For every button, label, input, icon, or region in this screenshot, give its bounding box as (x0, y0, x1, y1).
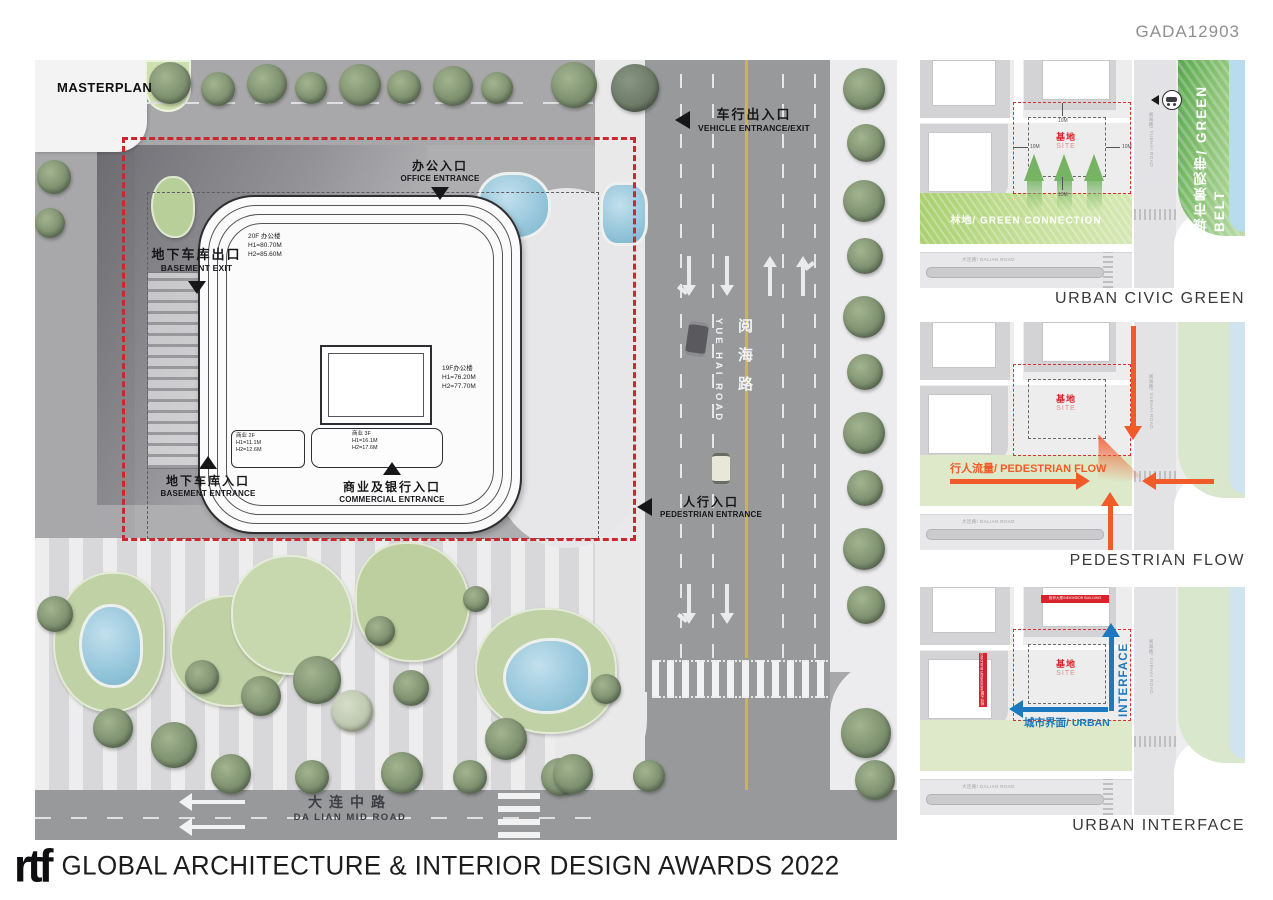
tree-icon (843, 180, 885, 222)
dalian-road: 大连路/ DALIAN ROAD (920, 252, 1132, 288)
crosswalk (1134, 209, 1176, 220)
tree-icon (843, 68, 885, 110)
tree-icon (37, 160, 71, 194)
vehicle-access-badge (1146, 90, 1182, 110)
site-en: SITE (1038, 670, 1094, 679)
interface-arrow-horizontal (1022, 707, 1108, 712)
road-median (926, 794, 1104, 805)
tree-icon (295, 760, 329, 794)
yuehai-road-label: 阅海路/ YUEHAI ROAD (1148, 639, 1154, 694)
site-zh: 基地 (1038, 659, 1094, 670)
building (932, 60, 996, 106)
site-en: SITE (1038, 405, 1094, 414)
diagram-urban-interface: 大连路/ DALIAN ROAD 阅海路/ YUEHAI ROAD 基地 SIT… (920, 587, 1245, 815)
arrow-down-icon (431, 187, 449, 200)
tree-icon (463, 586, 489, 612)
dalian-road-label: 大连路/ DALIAN ROAD (962, 784, 1015, 790)
building (1042, 587, 1110, 627)
waterfront (1229, 587, 1245, 759)
site-label: 基地 SITE (1038, 132, 1094, 152)
flow-arrow-left (950, 479, 1076, 484)
dalian-road-label: 大连路/ DALIAN ROAD (962, 519, 1015, 525)
tree-icon (611, 64, 659, 112)
tree-icon (633, 760, 665, 792)
site-en: SITE (1038, 143, 1094, 152)
caption-pedestrian-flow: PEDESTRIAN FLOW (920, 552, 1245, 570)
building (1042, 322, 1110, 362)
tree-icon (485, 718, 527, 760)
tree-icon (295, 72, 327, 104)
tree-icon (331, 690, 373, 732)
yuehai-road-zh: 阅海路 (734, 318, 755, 528)
lane-arrow-down-icon (725, 256, 729, 292)
tree-icon (847, 586, 885, 624)
site-zh: 基地 (1038, 394, 1094, 405)
tree-icon (365, 616, 395, 646)
tree-icon (591, 674, 621, 704)
tree-icon (293, 656, 341, 704)
arrow-up-icon (383, 462, 401, 475)
project-code: GADA12903 (1136, 22, 1240, 42)
tree-icon (339, 64, 381, 106)
pedestrian-flow-label: 行人流量/ PEDESTRIAN FLOW (950, 460, 1106, 476)
tree-icon (481, 72, 513, 104)
tree-icon (185, 660, 219, 694)
basement-exit-en: BASEMENT EXIT (161, 264, 233, 273)
dalian-road-label: 大连中路 DA LIAN MID ROAD (230, 792, 470, 823)
dimension-value: 10M (1122, 144, 1132, 150)
dalian-road-en: DA LIAN MID ROAD (230, 812, 470, 823)
tree-icon (843, 528, 885, 570)
interface-arrowhead-up-icon (1102, 623, 1120, 637)
site-zh: 基地 (1038, 132, 1094, 143)
arrow-left-icon (1146, 95, 1159, 105)
dimension-line (1106, 147, 1120, 148)
crosswalk (1134, 736, 1176, 747)
dimension-value: 10M (1058, 118, 1068, 124)
vehicle-entrance-text: 车行出入口 VEHICLE ENTRANCE/EXIT (698, 108, 810, 133)
analysis-diagrams: 林地/ GREEN CONNECTION 大连路/ DALIAN ROAD 阅海… (920, 60, 1245, 840)
car-badge-icon (1162, 90, 1182, 110)
tree-icon (387, 70, 421, 104)
pond (503, 638, 591, 714)
vehicle-entrance-label: 车行出入口 VEHICLE ENTRANCE/EXIT (675, 108, 810, 133)
interface-horizontal-label: 城市界面/ URBAN (1024, 715, 1110, 730)
tree-icon (847, 124, 885, 162)
tree-tail (1027, 181, 1042, 211)
masterplan-drawing: 20F 办公楼 H1=80.70M H2=85.60M 19F办公楼 H1=76… (35, 60, 897, 840)
neighbor-building-label: 相邻大厦/NEIGHBOR BUILDING (980, 653, 986, 706)
crosswalk (1103, 252, 1113, 288)
dalian-road: 大连路/ DALIAN ROAD (920, 514, 1132, 550)
building (932, 587, 996, 633)
sidewalk (920, 771, 1132, 779)
office-entrance-en: OFFICE ENTRANCE (401, 175, 480, 183)
building (928, 132, 992, 192)
car-body (1166, 97, 1177, 102)
car-wheel (1173, 103, 1176, 106)
tree-icon (847, 470, 883, 506)
flow-arrowhead-down-icon (1124, 426, 1142, 440)
car-wheel (1167, 103, 1170, 106)
park-green-shape (475, 608, 617, 734)
tree-icon (241, 676, 281, 716)
dalian-road-zh: 大连中路 (230, 792, 470, 812)
rtf-logo: rtf (14, 843, 49, 889)
road-arrow-left-icon (183, 825, 245, 829)
diagram-urban-civic-green: 林地/ GREEN CONNECTION 大连路/ DALIAN ROAD 阅海… (920, 60, 1245, 288)
road-median (926, 267, 1104, 278)
yuehai-road-label: 阅海路/ YUEHAI ROAD (1148, 112, 1154, 167)
center-line (745, 696, 748, 790)
tree-icon (847, 354, 883, 390)
awards-title: GLOBAL ARCHITECTURE & INTERIOR DESIGN AW… (61, 849, 839, 881)
road-median (926, 529, 1104, 540)
flow-arrow-top (1131, 326, 1136, 426)
tree-icon (1084, 154, 1104, 181)
commercial-entrance-en: COMMERCIAL ENTRANCE (339, 496, 444, 504)
arrow-left-icon (675, 111, 690, 129)
interface-arrow-vertical (1109, 635, 1114, 711)
tree-icon (843, 412, 885, 454)
lane-line (782, 60, 784, 658)
sidewalk (920, 506, 1132, 514)
basement-entrance-zh: 地下车库入口 (166, 475, 250, 488)
dimension-value: 10M (1030, 144, 1040, 150)
green-connection-label: 林地/ GREEN CONNECTION (920, 211, 1132, 226)
tree-icon (843, 296, 885, 338)
dimension-line (1062, 177, 1063, 190)
lane-arrow-up-right-icon (801, 260, 805, 296)
dalian-road: 大连路/ DALIAN ROAD (920, 779, 1132, 815)
office-entrance-zh: 办公入口 (412, 160, 468, 173)
interface-arrowhead-left-icon (1009, 700, 1023, 718)
caption-urban-interface: URBAN INTERFACE (920, 817, 1245, 835)
lane-line (814, 60, 816, 658)
building (928, 394, 992, 454)
dalian-road-label: 大连路/ DALIAN ROAD (962, 257, 1015, 263)
tree-tail (1087, 181, 1102, 211)
basement-entrance-label: 地下车库入口 BASEMENT ENTRANCE (123, 456, 293, 498)
crosswalk-dalian (498, 793, 540, 838)
neighbor-building-bar-top: 相邻大厦/NEIGHBOR BUILDING (1041, 595, 1109, 603)
lane-arrow-down-icon (725, 584, 729, 620)
tree-icon (93, 708, 133, 748)
tree-icon (247, 64, 287, 104)
footer: rtf GLOBAL ARCHITECTURE & INTERIOR DESIG… (14, 843, 840, 888)
commercial-entrance-zh: 商业及银行入口 (343, 481, 441, 494)
flow-arrow-bottom (1108, 506, 1113, 550)
yuehai-road: 阅海路/ YUEHAI ROAD (1132, 587, 1176, 815)
tree-icon (453, 760, 487, 794)
flow-arrowhead-up-icon (1101, 492, 1119, 506)
park-green-shape (53, 572, 165, 712)
neighbor-building-label: 相邻大厦/NEIGHBOR BUILDING (1041, 595, 1109, 602)
lane-arrow-down-left-icon (687, 584, 691, 620)
dimension-line (1062, 103, 1063, 116)
waterfront (1229, 60, 1245, 232)
lane-arrow-up-icon (768, 260, 772, 296)
waterfront (1229, 322, 1245, 494)
site-label: 基地 SITE (1038, 394, 1094, 414)
flow-arrowhead-left-icon (1142, 472, 1156, 490)
tree-icon (553, 754, 593, 794)
neighbor-building-bar-left: 相邻大厦/NEIGHBOR BUILDING (979, 653, 987, 707)
vehicle-entrance-zh: 车行出入口 (716, 108, 791, 122)
tree-icon (433, 66, 473, 106)
dimension-line (1014, 147, 1028, 148)
dimension-bottom: 10M (1058, 177, 1068, 198)
sidewalk (920, 244, 1132, 252)
tree-icon (201, 72, 235, 106)
commercial-entrance-label: 商业及银行入口 COMMERCIAL ENTRANCE (297, 462, 487, 504)
pond (79, 604, 143, 688)
basement-exit-label: 地下车库出口 BASEMENT EXIT (119, 248, 274, 294)
tree-icon (855, 760, 895, 800)
interface-vertical-label: INTERFACE (1118, 637, 1130, 717)
park-green-shape (231, 555, 353, 675)
plan-title: MASTERPLAN (57, 80, 152, 95)
basement-exit-zh: 地下车库出口 (151, 248, 241, 262)
dimension-left: 10M (1014, 144, 1040, 150)
green-belt-label: 城市景观带/ GREEN BELT (1192, 62, 1227, 232)
tree-icon (381, 752, 423, 794)
building (1042, 60, 1110, 100)
diagram-pedestrian-flow: 大连路/ DALIAN ROAD 阅海路/ YUEHAI ROAD 基地 SIT… (920, 322, 1245, 550)
yuehai-road-label: YUE HAI ROAD 阅海路 (713, 318, 755, 528)
building (932, 322, 996, 368)
caption-urban-civic-green: URBAN CIVIC GREEN (920, 290, 1245, 308)
site-label: 基地 SITE (1038, 659, 1094, 679)
basement-entrance-en: BASEMENT ENTRANCE (161, 490, 256, 498)
arrow-down-icon (188, 281, 206, 294)
office-entrance-label: 办公入口 OFFICE ENTRANCE (380, 160, 500, 200)
dimension-top: 10M (1058, 103, 1068, 124)
presentation-board: GADA12903 (0, 0, 1273, 900)
dimension-right: 10M (1106, 144, 1132, 150)
lane-arrow-down-left-icon (687, 256, 691, 292)
arrow-left-icon (637, 498, 652, 516)
arrow-up-icon (199, 456, 217, 469)
tree-icon (211, 754, 251, 794)
tree-icon (841, 708, 891, 758)
yuehai-road-label: 阅海路/ YUEHAI ROAD (1148, 374, 1154, 429)
crosswalk (1103, 779, 1113, 815)
crosswalk-yuehai (652, 660, 828, 698)
tree-icon (35, 208, 65, 238)
tree-icon (151, 722, 197, 768)
yuehai-road-en: YUE HAI ROAD (713, 318, 724, 528)
lane-line (680, 60, 682, 658)
tree-icon (551, 62, 597, 108)
tree-icon (847, 238, 883, 274)
dimension-value: 10M (1058, 192, 1068, 198)
flow-arrow-right (1156, 479, 1214, 484)
tree-icon (1024, 154, 1044, 181)
vehicle-entrance-en: VEHICLE ENTRANCE/EXIT (698, 124, 810, 133)
tree-icon (149, 62, 191, 104)
tree-icon (393, 670, 429, 706)
tree-icon (37, 596, 73, 632)
